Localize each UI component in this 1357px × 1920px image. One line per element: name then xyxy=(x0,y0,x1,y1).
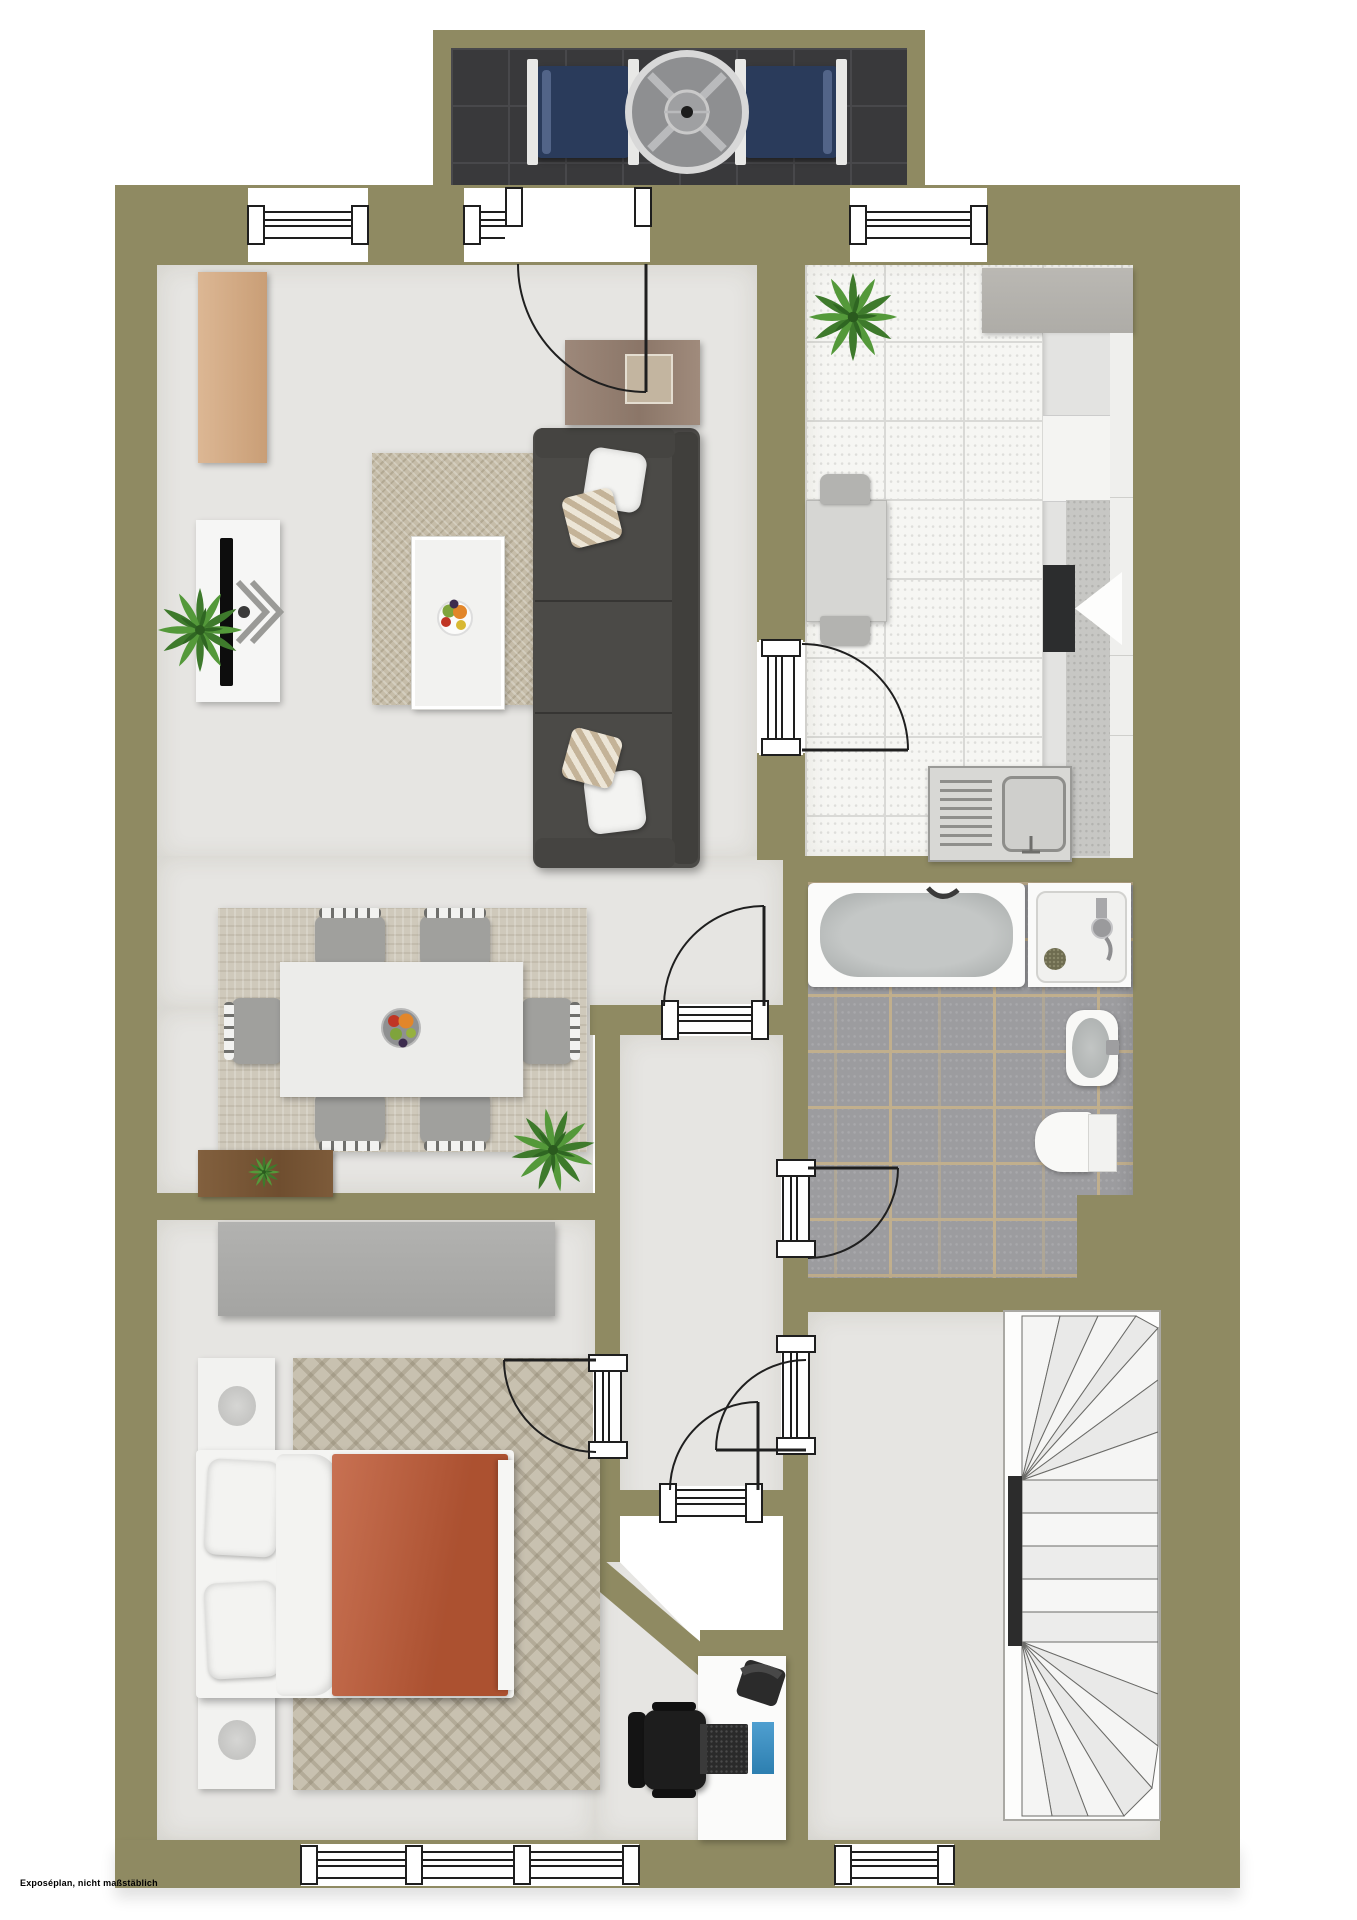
window-stair-room xyxy=(835,1844,954,1886)
doorframe-entrance xyxy=(660,1486,762,1520)
wardrobe xyxy=(218,1222,555,1316)
bed-blanket xyxy=(332,1454,508,1696)
lounger-headrest xyxy=(823,70,832,154)
bathtub-interior xyxy=(820,893,1013,977)
washbasin-tap xyxy=(1106,1040,1119,1055)
laptop-screen xyxy=(700,1724,707,1774)
wall-bottom xyxy=(115,1840,1240,1888)
wall-hall-left-upper xyxy=(595,1008,620,1357)
sofa-backrest xyxy=(672,432,698,864)
wall-left xyxy=(115,185,157,1888)
stair-room-floor xyxy=(808,1312,1163,1840)
balcony-door-opening xyxy=(505,188,650,262)
bed-sheet xyxy=(276,1454,338,1696)
sofa-seam xyxy=(535,712,672,714)
wall-kitchen-living-upper xyxy=(757,265,805,642)
hallway-floor xyxy=(620,1035,785,1518)
office-chair-armrest xyxy=(652,1789,696,1798)
kitchen-counter-top xyxy=(982,268,1133,333)
balcony-wall-left xyxy=(433,30,451,185)
disclaimer-text: Exposéplan, nicht maßstäblich xyxy=(20,1878,158,1888)
dining-chair-right xyxy=(522,998,572,1064)
toilet-bowl xyxy=(1035,1112,1093,1172)
dining-sideboard xyxy=(198,1150,333,1197)
tv-board xyxy=(196,520,280,702)
washbasin-bowl xyxy=(1072,1018,1110,1078)
doorframe-stair-room xyxy=(781,1336,810,1454)
dining-chair-top-2 xyxy=(420,916,490,966)
kitchen-chair-bottom xyxy=(820,616,870,646)
shower-drain xyxy=(1044,948,1066,970)
tan-cabinet xyxy=(198,272,267,463)
tv xyxy=(220,538,233,686)
wall-bath-notch xyxy=(1077,1195,1133,1285)
sun-lounger-left xyxy=(536,66,630,158)
lounger-end-bar xyxy=(628,59,639,165)
desk-folder-blue xyxy=(752,1722,774,1774)
floorplan-canvas: Exposéplan, nicht maßstäblich xyxy=(0,0,1357,1920)
wall-hall-top-right xyxy=(768,1005,808,1035)
sofa-seam xyxy=(535,600,672,602)
coffee-table xyxy=(412,537,504,709)
wall-entrance-right xyxy=(760,1490,788,1516)
sink-basin xyxy=(1002,776,1066,852)
wall-dining-bedroom xyxy=(157,1193,595,1220)
kitchen-table xyxy=(806,500,887,622)
wall-entrance-left xyxy=(620,1490,662,1516)
doorframe-kitchen xyxy=(759,640,803,755)
window-kitchen xyxy=(850,188,987,262)
stove xyxy=(1043,565,1075,652)
lounger-end-bar xyxy=(836,59,847,165)
doorframe-bathroom xyxy=(781,1160,810,1257)
shower-tray xyxy=(1036,891,1127,983)
balcony-door-jamb xyxy=(505,187,523,227)
wall-nook-top xyxy=(700,1630,788,1656)
sun-lounger-right xyxy=(744,66,838,158)
wall-right-lower xyxy=(1160,1278,1240,1888)
lounger-end-bar xyxy=(735,59,746,165)
bed-pillow-bottom xyxy=(204,1580,281,1680)
lounger-headrest xyxy=(542,70,551,154)
dining-chair-left xyxy=(232,998,282,1064)
toilet-tank xyxy=(1088,1114,1117,1172)
sink-drainboard xyxy=(940,780,992,846)
doorframe-bedroom xyxy=(593,1355,622,1458)
bed-pillow-top xyxy=(204,1458,281,1558)
dining-chair-bottom-1 xyxy=(315,1093,385,1143)
lamp-top xyxy=(218,1386,256,1426)
sideboard-decor-square xyxy=(625,354,673,404)
lamp-bottom xyxy=(218,1720,256,1760)
office-chair-armrest xyxy=(652,1702,696,1711)
balcony-wall-top xyxy=(433,30,925,48)
sofa-armrest-bottom xyxy=(535,838,675,868)
window-bedroom xyxy=(301,1844,639,1886)
bed-footboard xyxy=(498,1460,514,1690)
laptop xyxy=(704,1724,748,1774)
wall-kitchen-living-lower xyxy=(757,753,805,860)
doorframe-living-hall xyxy=(662,1004,768,1036)
kitchen-counter-speckle xyxy=(1066,500,1110,856)
dining-table xyxy=(280,962,523,1097)
dining-chair-top-1 xyxy=(315,916,385,966)
window-living-1 xyxy=(248,188,368,262)
lounger-end-bar xyxy=(527,59,538,165)
kitchen-chair-top xyxy=(820,474,870,504)
balcony-wall-right xyxy=(907,30,925,185)
office-chair-seat xyxy=(644,1710,706,1790)
balcony-door-jamb xyxy=(634,187,652,227)
wall-right-upper xyxy=(1133,185,1240,1318)
dining-chair-bottom-2 xyxy=(420,1093,490,1143)
